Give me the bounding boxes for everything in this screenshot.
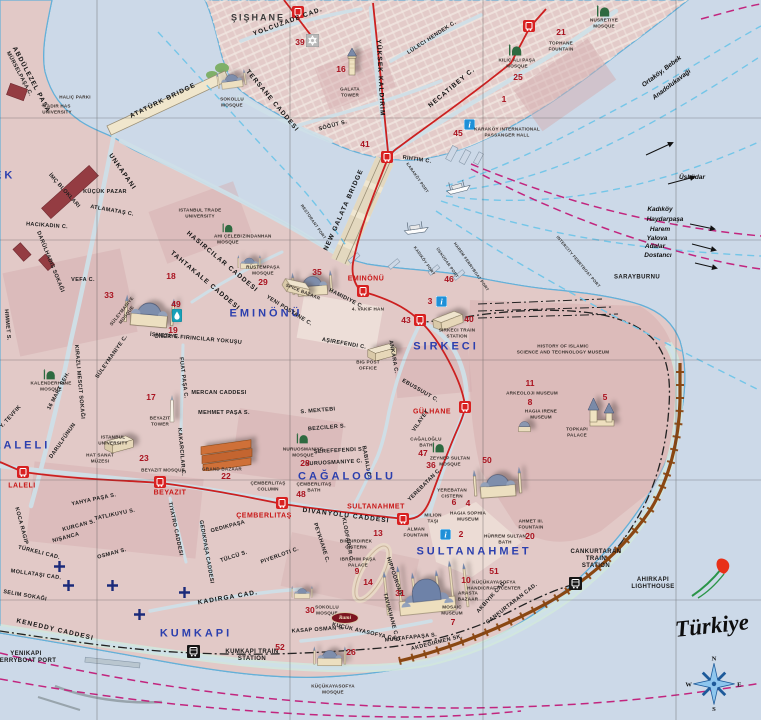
poi-marker-40: 40 [464,315,473,324]
ferry-destination-label: Anadolukavağı [651,68,693,102]
poi-marker-3: 3 [428,297,433,306]
poi-label: GRAND BAZAAR [202,466,242,472]
port-label: HAREM FERRYBOAT PORT [452,242,489,292]
poi-marker-8: 8 [528,398,533,407]
tram-station-sirkeci [414,314,426,326]
hagia-irene-icon [516,419,533,433]
train-station-kumkapi [187,645,200,658]
station-label: LALELI [8,483,36,490]
street-label: İMÇ BLOKLARI [47,172,81,209]
poi-label: HAGIA SOPHIA MUSEUM [450,511,486,522]
tram-station-eminonu [357,285,369,297]
street-label: KAKARCILAR C. [176,428,186,477]
poi-marker-47: 47 [418,449,427,458]
new-mosque-icon [288,265,336,302]
street-label: UNKAPANI [107,152,138,191]
street-label: AKDEĞIRMEN SK. [410,634,463,653]
poi-marker-10: 10 [461,576,470,585]
bath-icon [172,309,182,322]
nusretiye-mosque-icon [595,5,613,18]
street-label: TERSANE CADDESI [244,68,300,133]
poi-label: HALIÇ PARKI [59,94,90,100]
street-label: HIPPODROME [385,556,404,597]
street-label: OSMAN S. [97,547,128,561]
tram-station-karakoy [381,151,393,163]
poi-label: BEYAZIT MOSQUE [141,467,185,473]
street-label: DIVANYOLU CADDESI [302,507,390,525]
street-label: KÜÇÜK PAZAR [83,189,127,195]
poi-marker-11: 11 [526,379,535,388]
poi-marker-14: 14 [363,578,372,587]
poi-label: ISTANBUL TRADE UNIVERSITY [179,208,222,219]
ferry-destination-label: Yalova [647,235,668,243]
ferry-destination-label: Kadıköy [647,206,672,214]
church-cross-icon [179,587,190,598]
poi-label: ISTANBUL UNIVERSITY [98,435,128,446]
street-label: SELIM SOKAĞI [3,589,48,603]
poi-label: SÜLEYMANIYE MOSQUE [109,296,139,331]
poi-marker-9: 9 [355,567,360,576]
poi-label: KARAKÖY INTERNATIONAL PASSANGER HALL [474,127,540,138]
district-label: LALELI [0,441,50,452]
poi-label: AHIRKAPI LIGHTHOUSE [631,577,674,591]
street-label: BABIALI C. [360,445,372,478]
ferry-destination-label: Dostancı [644,252,671,260]
info-point-sultanahmet [440,529,451,540]
street-label: İSMETIYE FIRINCILAR YOKUŞU [150,332,243,346]
poi-marker-51: 51 [489,567,498,576]
street-label: KLODFARER C. [340,517,354,563]
istanbul-university-gate-icon [101,434,135,455]
poi-marker-52: 52 [275,643,284,652]
tram-station-cemberlitas [276,497,288,509]
street-label: PIYERLOTI C. [260,546,300,566]
street-label: EBUSSUUT C. [401,378,440,404]
district-label: SIRKECI [413,342,479,353]
street-label: SÜLEYMANIYE C. [95,334,130,380]
poi-marker-17: 17 [146,393,155,402]
street-label: VILAYET [411,409,431,433]
poi-label: ÇEMBERLITAŞ COLUMN [250,481,285,492]
street-label: DARÜLHADIS SOKAĞI [35,230,65,293]
ferry-destination-label: Adalar [645,243,665,251]
poi-label: CANKURTARAN TRAIN STATION [571,549,622,571]
synagogue-icon [306,34,319,47]
poi-label: YEREBATAN CISTERN [437,488,467,499]
poi-marker-30: 30 [305,606,314,615]
street-label: NIŞANCA [52,531,80,544]
street-label: FUAT PAŞA C. [177,357,188,399]
poi-label: HAT SANAT MÜZESI [86,453,114,464]
poi-label: 4. VAKIF HAN [352,306,384,312]
street-label: DARULFÜNUN [48,422,77,460]
poi-label: AHI ÇELEBI MOSQUE [214,234,242,245]
street-label: VEFA C. [71,277,95,283]
poi-label: GALATA TOWER [340,87,360,98]
ferry-destination-label: Haydarpaşa [647,216,684,224]
district-label: EMINÖNÜ [230,309,303,320]
poi-marker-41: 41 [360,140,369,149]
street-label: MOLLATAŞI CAD. [10,568,62,581]
train-station-cankurtaran [569,577,582,590]
poi-marker-25: 25 [513,73,522,82]
street-label: PEYKHANE C. [312,522,331,563]
poi-marker-36: 36 [426,461,435,470]
compass-w: W [685,682,692,689]
street-label: SÖĞÜT S. [318,119,348,133]
tram-station-laleli [17,466,29,478]
poi-label: HÜRREM SULTAN BATH [484,534,526,545]
street-label: GEDIKPAŞA [210,519,246,534]
poi-marker-21: 21 [556,28,565,37]
street-label: YOLCUZADE CAD. [252,6,324,38]
poi-marker-48: 48 [296,490,305,499]
station-label: BEYAZIT [154,490,187,497]
street-label: ŞEREFEFENDI S. [314,447,364,456]
poi-marker-23: 23 [139,454,148,463]
ferry-destination-label: Üsküdar [679,174,705,182]
poi-label: ALMAN FOUNTAIN [404,527,429,538]
poi-marker-31: 31 [395,589,404,598]
street-label: ANKARA C. [387,340,399,374]
port-label: ÜSKÜDAR PORT [435,247,459,279]
poi-label: NUSRETIYE MOSQUE [590,18,618,29]
compass-rose: N S W E [684,652,744,712]
station-label: ÇEMBERLITAŞ [236,513,292,520]
poi-label: ZEYNEP SULTAN MOSQUE [430,456,470,467]
poi-label: ÇEMBERLITAŞ BATH [296,482,331,493]
zeynep-sultan-mosque-icon [431,442,447,454]
compass-s: S [712,706,716,713]
poi-marker-45: 45 [453,129,462,138]
district-label: CAĞALOĞLU [298,472,396,483]
poi-label: BIG POST OFFICE [356,360,380,371]
poi-marker-5: 5 [603,393,608,402]
street-label: NEW GALATA BRIDGE [323,168,366,252]
street-label: HASIRCILAR CADDESI [185,230,259,294]
poi-label: SOKOLLU MOSQUE [220,97,244,108]
poi-marker-2: 2 [459,530,464,539]
street-label: 16 MART ŞEH. [46,371,71,411]
poi-label: SOKOLLU MOSQUE [315,605,339,616]
poi-label: TOPKAPI PALACE [566,427,588,438]
turkiye-logo: Türkiye [674,609,750,643]
street-label: YÜKSEK KALDIRIM [374,39,385,116]
street-label: TÜRKELI CAD. [17,545,60,562]
tram-station-gulhane [459,401,471,413]
big-post-office-icon [364,342,398,363]
ferry-boat-icon [443,176,475,196]
church-cross-icon [63,580,74,591]
church-cross-icon [54,561,65,572]
poi-marker-19: 19 [168,326,177,335]
street-label: ÖNER C. [154,334,179,340]
tram-station-beyazit [154,476,166,488]
poi-label: TOPHANE FOUNTAIN [549,41,574,52]
kalenderhane-mosque-icon [42,369,58,381]
street-label: ATLAMATAŞ C. [90,204,135,218]
street-label: KOCA RAGIP [13,507,29,546]
poi-label: RÜSTEMPAŞA MOSQUE [246,265,280,276]
poi-marker-50: 50 [482,456,491,465]
poi-marker-13: 13 [373,529,382,538]
street-label: KIRAZLI MESCIT SOKAĞI [73,345,86,420]
galata-tower-icon [343,48,361,78]
street-label: YEREBATAN C. [407,467,443,503]
poi-label: ARASTA BAZAAR [458,591,479,602]
street-label: KADIRGA CAD. [197,589,258,607]
poi-label: KÜÇÜKAYASOFYA MOSQUE [311,684,354,695]
district-label: ŞIŞHANE [231,14,285,23]
street-label: MEHMET PAŞA S. [198,410,250,416]
tulip-icon [688,556,736,600]
poi-marker-7: 7 [451,618,456,627]
sokollu-azapkapi-mosque-icon [213,65,249,93]
hotel-badge: Rami [331,612,359,624]
poi-marker-43: 43 [401,316,410,325]
sokollu-kadirga-mosque-icon [290,583,314,601]
street-label: HIMMET S. [2,309,11,341]
port-label: RESTORANT PORT [299,204,326,240]
district-label: KUMKAPI [160,629,232,640]
station-label: EMINÖNÜ [348,276,385,283]
street-label: AŞIREFENDI C. [321,337,366,351]
street-label: GEDIKPAŞA CADDESI [197,520,214,584]
ahi-celebi-mosque-icon [221,223,235,233]
poi-marker-18: 18 [166,272,175,281]
nuruosmaniye-mosque-icon [295,433,311,445]
poi-label: MOSAIC MUSEUM [441,605,463,616]
street-label: MUSTAFAPAŞA S. [385,632,438,644]
beyazit-tower-icon [167,395,177,423]
street-label: NURUOSMANIYE C. [305,458,363,467]
street-label: TATLIKUYU S. [94,508,136,523]
topkapi-palace-icon [581,398,621,428]
poi-label: MILION TAŞI [424,513,441,524]
label-layer: Türkiye N S W E ŞIŞHANEZEYREKEMINÖNÜSIRK… [0,0,761,720]
poi-label: HAGIA IRENE MUSEUM [525,409,557,420]
street-label: HAMIDIYE C. [328,288,365,311]
poi-label: YENIKAPI FERRYBOAT PORT [0,651,56,665]
suleymaniye-mosque-icon [120,288,181,334]
hagia-sophia-icon [468,460,526,504]
street-label: ABDÜLEZEL PAŞA [10,46,51,115]
street-label: TAHTAKALE CADDESI [169,250,242,313]
street-label: KURCAN S. [62,519,96,534]
street-label: NECATIBEY C. [427,66,477,109]
poi-label: SPICE BAZAAR [285,283,321,302]
street-label: CANKURTARAN CAD. [485,582,539,626]
poi-marker-29: 29 [258,278,267,287]
poi-label: SIRKECI TRAIN STATION [439,328,476,339]
poi-marker-4: 4 [466,499,471,508]
tram-station-sultanahmet [397,513,409,525]
poi-marker-33: 33 [104,291,113,300]
poi-marker-39: 39 [295,38,304,47]
church-cross-icon [134,609,145,620]
poi-marker-1: 1 [502,95,507,104]
istanbul-tourist-map: i [0,0,761,720]
street-label: BEZCILER S. [308,423,346,433]
poi-label: KÜÇÜKAYASOFYA HANDICRAFT CENTER [467,580,521,591]
ferry-destination-label: Ortaköy, Bebek [641,55,684,90]
poi-label: AHMET III. FOUNTAIN [519,519,544,530]
street-label: RIHTIM C. [402,155,432,165]
poi-label: KUMKAPI TRAIN STATION [225,649,278,663]
poi-label: BEYAZIT TOWER [150,416,171,427]
poi-label: HISTORY OF ISLAMIC SCIENCE AND TECHNOLOG… [517,344,610,355]
poi-label: NURUOSMANIYE MOSQUE [283,447,323,458]
kilic-ali-pasa-mosque-icon [507,44,525,57]
ferry-boat-icon [401,218,433,235]
poi-label: ZINDANHAN [242,233,271,239]
street-label: KASAP OSMAN S. [291,625,344,635]
street-label: Y. TEVFIK [0,404,23,430]
poi-marker-20: 20 [525,532,534,541]
poi-marker-46: 46 [444,275,453,284]
district-label: SULTANAHMET [416,547,531,558]
info-point-karakoy [464,119,475,130]
info-point-sirkeci [436,296,447,307]
street-label: HACIKADIN C. [26,221,68,230]
poi-label: CAĞALOĞLU BATH [410,437,441,448]
poi-label: IBRAHIM PAŞA PALACE [340,557,376,568]
station-label: GÜLHANE [413,409,451,416]
district-label: ZEYREK [0,171,15,182]
poi-marker-6: 6 [452,498,457,507]
street-label: YENI POSTANE C. [265,294,313,327]
street-label: TÜLCÜ S. [220,550,249,565]
street-label: TIYATRO CADDESI [166,502,184,557]
street-label: YAHYA PAŞA S. [71,492,117,508]
compass-e: E [737,682,742,689]
port-label: INTERCITY FERRYBOAT PORT [555,235,601,288]
street-label: TAVUKHANE C. [381,592,399,637]
poi-label: KALENDERHANE MOSQUE [31,381,72,392]
blue-mosque-icon [377,554,475,625]
poi-marker-22: 22 [221,472,230,481]
poi-label: ARKEOLOJI MUSEUM [506,390,558,396]
rustempasa-mosque-icon [236,252,262,271]
station-label: SULTANAHMET [347,504,405,511]
poi-marker-26: 26 [346,648,355,657]
poi-label: KILIÇ ALI PAŞA MOSQUE [499,58,536,69]
church-cross-icon [107,580,118,591]
poi-marker-16: 16 [336,65,345,74]
street-label: KENEDDY CADDESI [16,617,95,642]
street-label: AKBIYIK CAD. [476,579,509,614]
tram-station-tophane [523,20,535,32]
sirkeci-station-building-icon [428,308,466,334]
poi-label: BINBIRDIREK CISTERN [340,539,372,550]
poi-label: KADIR HAS UNIVERSITY [42,104,72,115]
poi-label: SARAYBURNU [614,274,660,281]
poi-marker-49: 49 [171,300,180,309]
street-label: MERCAN CADDESI [191,390,246,396]
street-label: ATATÜRK BRIDGE [129,82,197,120]
street-label: LÜLECI HENDEK C. [406,20,457,56]
kucuk-ayasofya-mosque-icon [311,642,348,669]
poi-marker-35: 35 [312,268,321,277]
port-label: KARAKÖY PORT [405,162,429,194]
poi-marker-28: 28 [300,459,309,468]
port-label: KADIKÖY PORT [412,246,435,277]
ferry-destination-label: Harem [650,226,670,234]
tram-station-sishane [292,6,304,18]
street-label: KÜÇÜK AYASOFYA CAD. [331,622,402,644]
grand-bazaar-icon [199,439,255,471]
street-label: S. MEKTEBI [300,406,335,415]
street-label: MÜRSELPAŞA C. [5,51,34,98]
spice-bazaar-icon [276,271,314,304]
compass-n: N [712,655,717,662]
